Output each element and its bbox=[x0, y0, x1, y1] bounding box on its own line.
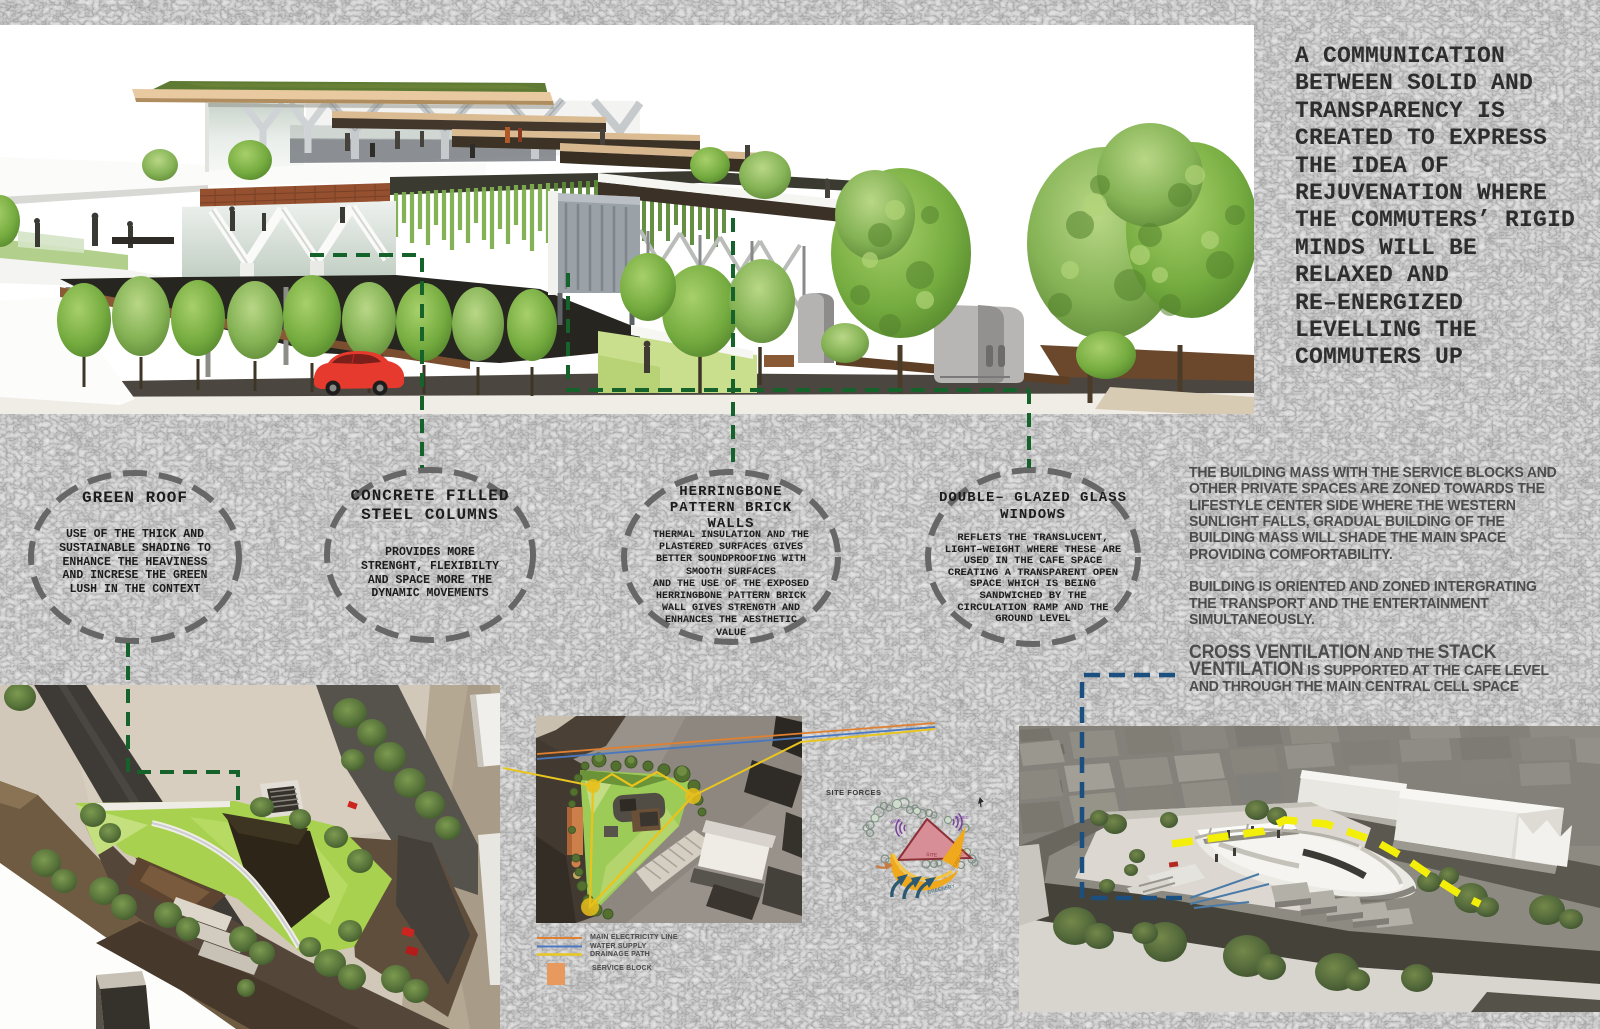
svg-text:SITE: SITE bbox=[926, 852, 938, 859]
svg-text:NOISE: NOISE bbox=[955, 815, 969, 820]
